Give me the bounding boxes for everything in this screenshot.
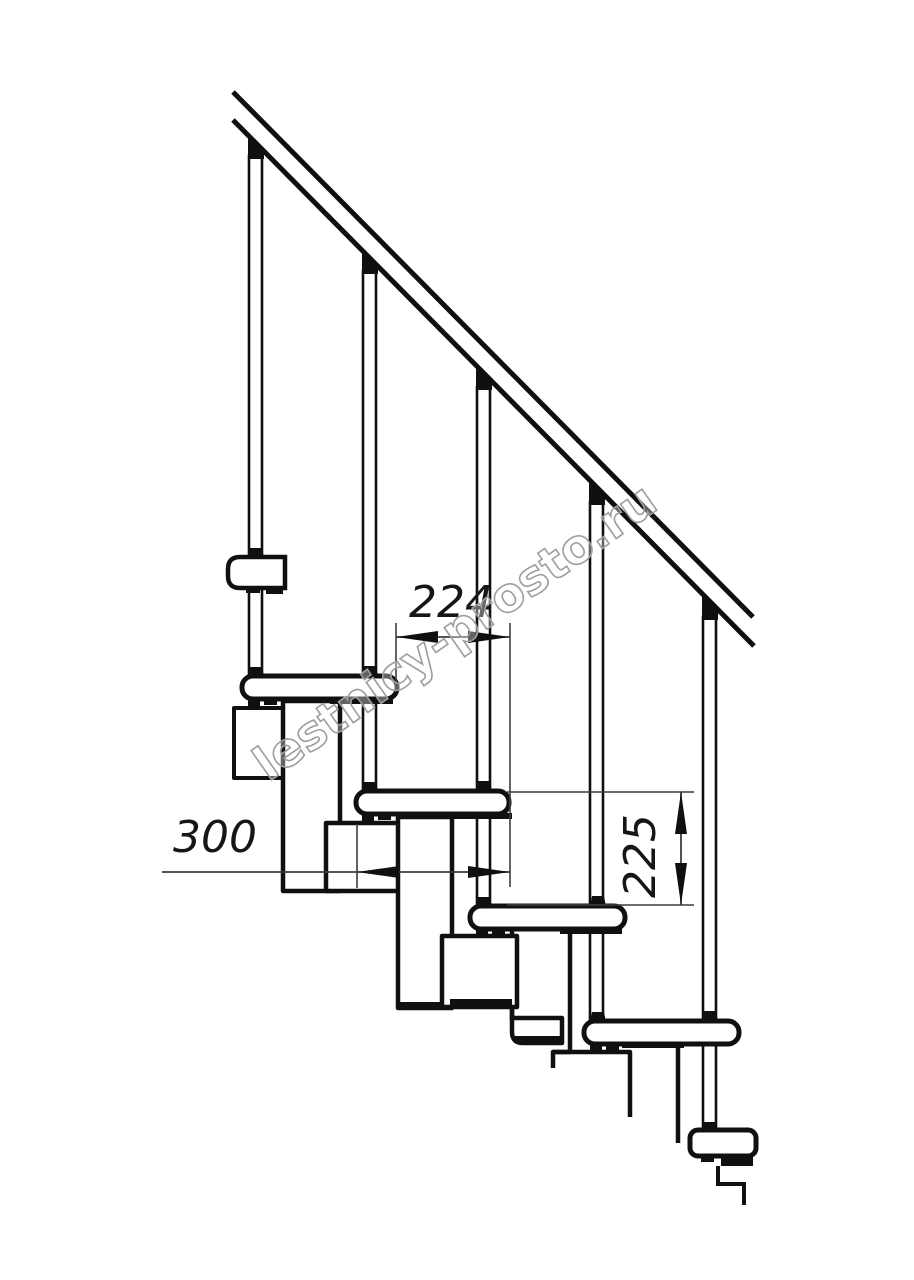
module-2-block [442,936,517,1007]
dimension-225-label: 225 [615,814,666,898]
tread-2 [356,791,509,814]
handrail-lower-line [233,120,754,646]
top-tread [228,557,285,588]
floor-cut-line [718,1166,744,1205]
arrow-up-icon [675,792,687,834]
arrow-down-icon [675,863,687,905]
module-1-block [326,823,400,891]
baluster-5 [703,617,716,1134]
dimension-300-label: 300 [173,812,257,863]
handrail [233,92,754,646]
baluster-1 [249,156,262,679]
baluster-4 [590,502,603,1024]
staircase-drawing: 224 300 225 lestnicy-prosto.ru [0,0,914,1280]
handrail-upper-line [233,92,753,617]
floor-mount [690,1130,756,1205]
tread-4 [584,1021,739,1044]
module-4-cut-line [553,1052,630,1117]
tread-3 [470,906,625,929]
